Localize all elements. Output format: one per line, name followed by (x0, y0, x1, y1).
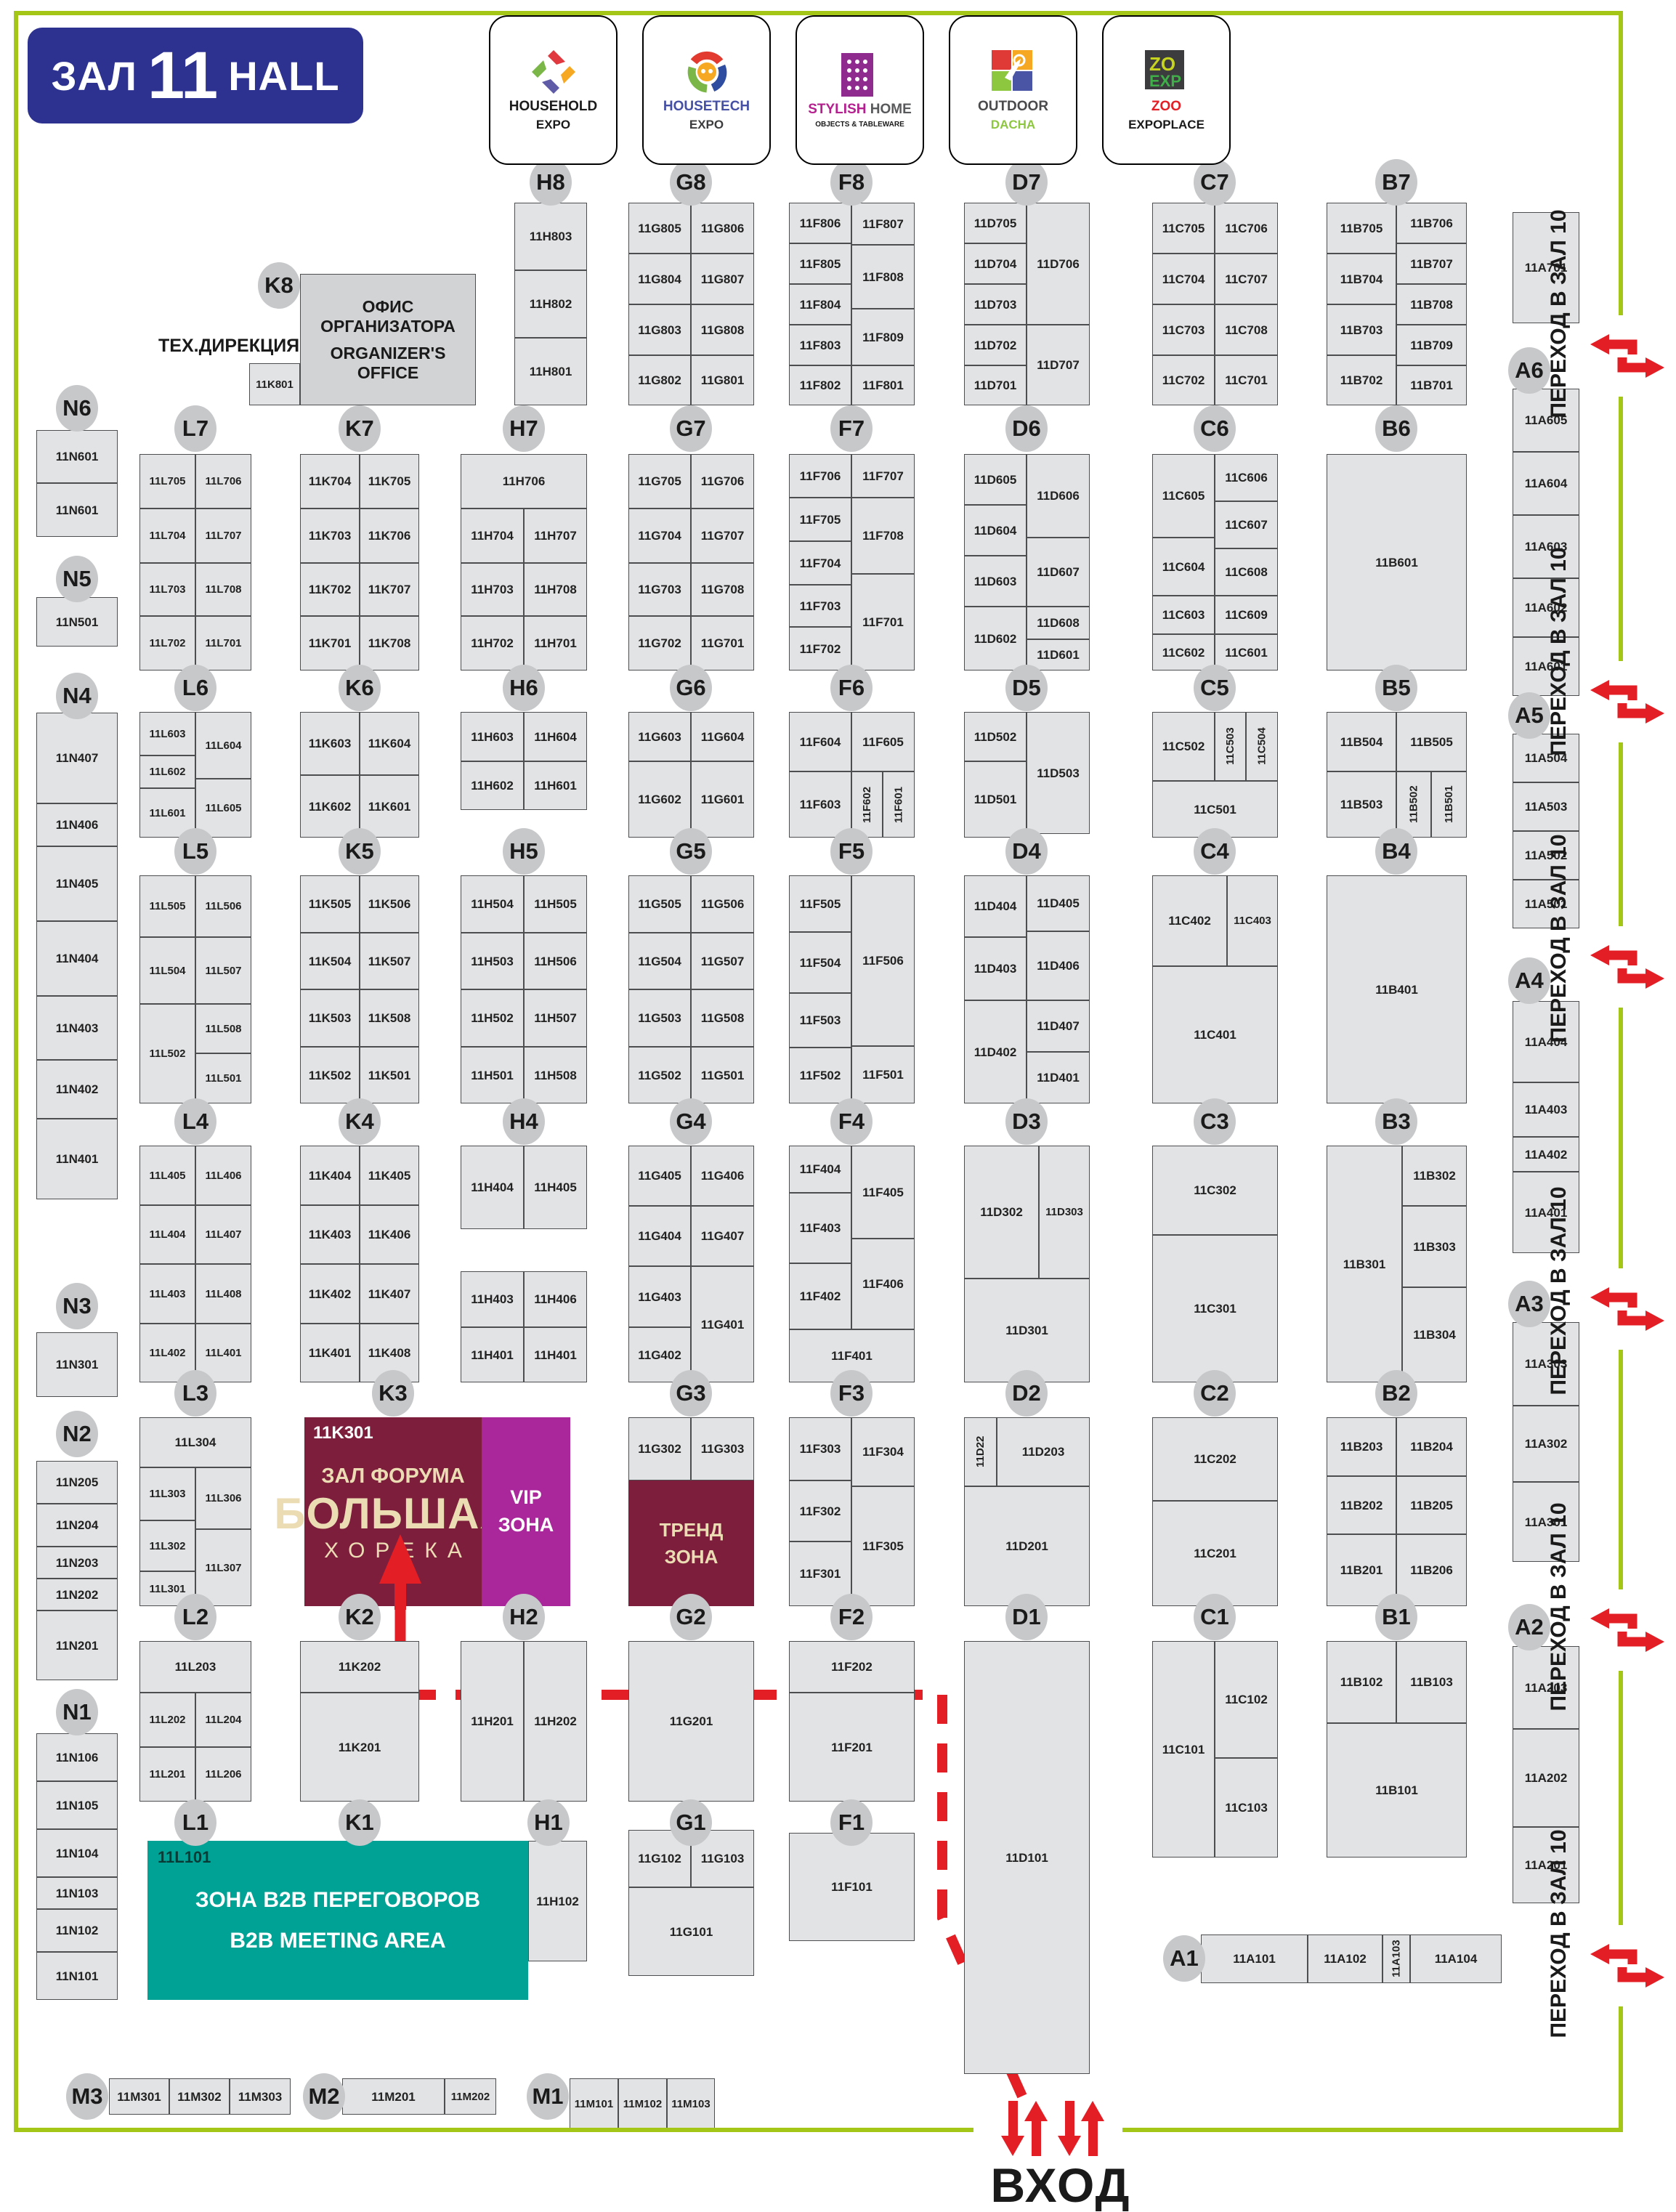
booth-11D607[interactable]: 11D607 (1027, 538, 1090, 607)
booth-11G201[interactable]: 11G201 (628, 1641, 754, 1802)
booth-11L304[interactable]: 11L304 (139, 1417, 251, 1467)
booth-11D705[interactable]: 11D705 (964, 203, 1027, 243)
booth-11D405[interactable]: 11D405 (1027, 875, 1090, 931)
logo-stylish[interactable]: STYLISH HOMEOBJECTS & TABLEWARE (796, 15, 924, 165)
booth-11G504[interactable]: 11G504 (628, 933, 691, 989)
booth-11N101[interactable]: 11N101 (36, 1952, 118, 2000)
booth-11G501[interactable]: 11G501 (691, 1047, 754, 1103)
booth-11D605[interactable]: 11D605 (964, 454, 1027, 505)
booth-11N202[interactable]: 11N202 (36, 1579, 118, 1611)
booth-11H405[interactable]: 11H405 (524, 1146, 587, 1229)
booth-11F708[interactable]: 11F708 (851, 498, 915, 574)
booth-11H508[interactable]: 11H508 (524, 1047, 587, 1103)
booth-11H507[interactable]: 11H507 (524, 989, 587, 1047)
booth-11N401[interactable]: 11N401 (36, 1119, 118, 1199)
booth-11F707[interactable]: 11F707 (851, 454, 915, 498)
booth-11C608[interactable]: 11C608 (1215, 548, 1278, 596)
booth-11F801[interactable]: 11F801 (851, 365, 915, 405)
booth-11L705[interactable]: 11L705 (139, 454, 195, 509)
booth-11L408[interactable]: 11L408 (195, 1264, 251, 1324)
booth-11G806[interactable]: 11G806 (691, 203, 754, 254)
booth-11F605[interactable]: 11F605 (851, 712, 915, 771)
booth-11N201[interactable]: 11N201 (36, 1611, 118, 1680)
booth-11L407[interactable]: 11L407 (195, 1205, 251, 1264)
booth-11D601[interactable]: 11D601 (1027, 639, 1090, 671)
booth-11N405[interactable]: 11N405 (36, 846, 118, 921)
booth-11D604[interactable]: 11D604 (964, 505, 1027, 556)
logo-outdoor[interactable]: OUTDOORDACHA (949, 15, 1077, 165)
booth-11B302[interactable]: 11B302 (1402, 1146, 1467, 1206)
booth-11B202[interactable]: 11B202 (1327, 1476, 1396, 1534)
booth-11L706[interactable]: 11L706 (195, 454, 251, 509)
booth-11A503[interactable]: 11A503 (1513, 782, 1579, 831)
booth-11F201[interactable]: 11F201 (789, 1693, 915, 1802)
booth-11L303[interactable]: 11L303 (139, 1467, 195, 1520)
booth-11H604[interactable]: 11H604 (524, 712, 587, 761)
booth-11G302[interactable]: 11G302 (628, 1417, 691, 1480)
booth-11G507[interactable]: 11G507 (691, 933, 754, 989)
booth-11F806[interactable]: 11F806 (789, 203, 851, 243)
organizer-office[interactable]: ОФИС ОРГАНИЗАТОРА ORGANIZER'S OFFICE (300, 274, 476, 405)
booth-11B708[interactable]: 11B708 (1396, 284, 1467, 325)
booth-11G502[interactable]: 11G502 (628, 1047, 691, 1103)
booth-11C504[interactable]: 11C504 (1246, 712, 1278, 781)
booth-11L306[interactable]: 11L306 (195, 1467, 251, 1529)
booth-11D403[interactable]: 11D403 (964, 937, 1027, 1000)
booth-11H401[interactable]: 11H401 (524, 1327, 587, 1382)
booth-11B703[interactable]: 11B703 (1327, 304, 1396, 355)
booth-11F705[interactable]: 11F705 (789, 498, 851, 541)
booth-11F701[interactable]: 11F701 (851, 574, 915, 671)
booth-11K603[interactable]: 11K603 (300, 712, 360, 775)
booth-11H701[interactable]: 11H701 (524, 616, 587, 671)
booth-11F501[interactable]: 11F501 (851, 1046, 915, 1103)
booth-11M201[interactable]: 11M201 (342, 2078, 445, 2115)
booth-11G601[interactable]: 11G601 (691, 761, 754, 838)
booth-11D203[interactable]: 11D203 (997, 1417, 1090, 1486)
booth-11B201[interactable]: 11B201 (1327, 1534, 1396, 1606)
booth-11H406[interactable]: 11H406 (524, 1271, 587, 1327)
booth-11H703[interactable]: 11H703 (461, 563, 524, 616)
booth-11C601[interactable]: 11C601 (1215, 634, 1278, 671)
booth-11G101[interactable]: 11G101 (628, 1887, 754, 1976)
booth-11N104[interactable]: 11N104 (36, 1829, 118, 1877)
booth-11K506[interactable]: 11K506 (360, 875, 419, 933)
booth-11G805[interactable]: 11G805 (628, 203, 691, 254)
booth-11D404[interactable]: 11D404 (964, 875, 1027, 937)
booth-11L708[interactable]: 11L708 (195, 563, 251, 616)
booth-11K702[interactable]: 11K702 (300, 563, 360, 616)
booth-11A604[interactable]: 11A604 (1513, 452, 1579, 515)
booth-11C605[interactable]: 11C605 (1152, 454, 1215, 538)
booth-11F404[interactable]: 11F404 (789, 1146, 851, 1193)
booth-11F303[interactable]: 11F303 (789, 1417, 851, 1480)
zone-vip[interactable]: VIP ЗОНА (482, 1417, 570, 1606)
booth-11C702[interactable]: 11C702 (1152, 355, 1215, 405)
booth-11L502[interactable]: 11L502 (139, 1004, 195, 1103)
logo-zoo[interactable]: ZO EXPZOOEXPOPLACE (1102, 15, 1231, 165)
booth-11K405[interactable]: 11K405 (360, 1146, 419, 1205)
booth-11B204[interactable]: 11B204 (1396, 1417, 1467, 1476)
booth-11N402[interactable]: 11N402 (36, 1060, 118, 1119)
booth-11K801[interactable]: 11K801 (249, 363, 300, 405)
booth-11H603[interactable]: 11H603 (461, 712, 524, 761)
booth-11L702[interactable]: 11L702 (139, 616, 195, 671)
booth-11A101[interactable]: 11A101 (1201, 1935, 1308, 1983)
booth-11L202[interactable]: 11L202 (139, 1693, 195, 1747)
booth-11C302[interactable]: 11C302 (1152, 1146, 1278, 1235)
booth-11K504[interactable]: 11K504 (300, 933, 360, 989)
booth-11F402[interactable]: 11F402 (789, 1263, 851, 1329)
booth-11N501[interactable]: 11N501 (36, 597, 118, 647)
booth-11G603[interactable]: 11G603 (628, 712, 691, 761)
booth-11G807[interactable]: 11G807 (691, 254, 754, 304)
booth-11B101[interactable]: 11B101 (1327, 1723, 1467, 1857)
booth-11C603[interactable]: 11C603 (1152, 596, 1215, 634)
booth-11B502[interactable]: 11B502 (1396, 771, 1431, 838)
booth-11G505[interactable]: 11G505 (628, 875, 691, 933)
booth-11F406[interactable]: 11F406 (851, 1239, 915, 1329)
booth-11C403[interactable]: 11C403 (1227, 875, 1278, 966)
booth-11B702[interactable]: 11B702 (1327, 355, 1396, 405)
booth-11C402[interactable]: 11C402 (1152, 875, 1227, 966)
booth-11H401[interactable]: 11H401 (461, 1327, 524, 1382)
booth-11H506[interactable]: 11H506 (524, 933, 587, 989)
booth-11K403[interactable]: 11K403 (300, 1205, 360, 1264)
booth-11A103[interactable]: 11A103 (1383, 1935, 1410, 1983)
booth-11B301[interactable]: 11B301 (1327, 1146, 1402, 1382)
booth-11L206[interactable]: 11L206 (195, 1747, 251, 1802)
booth-11B503[interactable]: 11B503 (1327, 771, 1396, 838)
booth-11L501[interactable]: 11L501 (195, 1053, 251, 1103)
booth-11A202[interactable]: 11A202 (1513, 1729, 1579, 1827)
booth-11F604[interactable]: 11F604 (789, 712, 851, 771)
booth-11G801[interactable]: 11G801 (691, 355, 754, 405)
booth-11D101[interactable]: 11D101 (964, 1641, 1090, 2074)
booth-11L603[interactable]: 11L603 (139, 712, 195, 755)
booth-11B203[interactable]: 11B203 (1327, 1417, 1396, 1476)
booth-11C604[interactable]: 11C604 (1152, 538, 1215, 596)
booth-11K508[interactable]: 11K508 (360, 989, 419, 1047)
booth-11K505[interactable]: 11K505 (300, 875, 360, 933)
booth-11C706[interactable]: 11C706 (1215, 203, 1278, 254)
booth-11B706[interactable]: 11B706 (1396, 203, 1467, 243)
booth-11F304[interactable]: 11F304 (851, 1417, 915, 1486)
booth-11B705[interactable]: 11B705 (1327, 203, 1396, 254)
booth-11G503[interactable]: 11G503 (628, 989, 691, 1047)
booth-11K704[interactable]: 11K704 (300, 454, 360, 509)
booth-11K601[interactable]: 11K601 (360, 775, 419, 838)
booth-11D602[interactable]: 11D602 (964, 607, 1027, 671)
booth-11C607[interactable]: 11C607 (1215, 501, 1278, 548)
booth-11G303[interactable]: 11G303 (691, 1417, 754, 1480)
booth-11C202[interactable]: 11C202 (1152, 1417, 1278, 1501)
booth-11G708[interactable]: 11G708 (691, 563, 754, 616)
booth-11F602[interactable]: 11F602 (851, 771, 883, 838)
booth-11H601[interactable]: 11H601 (524, 761, 587, 810)
booth-11B205[interactable]: 11B205 (1396, 1476, 1467, 1534)
booth-11F603[interactable]: 11F603 (789, 771, 851, 838)
booth-11H706[interactable]: 11H706 (461, 454, 587, 509)
booth-11D608[interactable]: 11D608 (1027, 607, 1090, 639)
booth-11D706[interactable]: 11D706 (1027, 203, 1090, 325)
booth-11L505[interactable]: 11L505 (139, 875, 195, 937)
booth-11D603[interactable]: 11D603 (964, 556, 1027, 607)
booth-11H505[interactable]: 11H505 (524, 875, 587, 933)
booth-11L406[interactable]: 11L406 (195, 1146, 251, 1205)
booth-11N407[interactable]: 11N407 (36, 713, 118, 803)
booth-11A402[interactable]: 11A402 (1513, 1137, 1579, 1172)
booth-11K407[interactable]: 11K407 (360, 1264, 419, 1324)
booth-11C708[interactable]: 11C708 (1215, 304, 1278, 355)
booth-11C502[interactable]: 11C502 (1152, 712, 1215, 781)
booth-11L707[interactable]: 11L707 (195, 509, 251, 563)
booth-11H503[interactable]: 11H503 (461, 933, 524, 989)
booth-11C301[interactable]: 11C301 (1152, 1235, 1278, 1382)
booth-11K404[interactable]: 11K404 (300, 1146, 360, 1205)
booth-11G506[interactable]: 11G506 (691, 875, 754, 933)
booth-11L605[interactable]: 11L605 (195, 779, 251, 838)
booth-11N205[interactable]: 11N205 (36, 1461, 118, 1504)
booth-11F805[interactable]: 11F805 (789, 243, 851, 284)
booth-11F403[interactable]: 11F403 (789, 1193, 851, 1263)
booth-11D302[interactable]: 11D302 (964, 1146, 1039, 1279)
booth-11N406[interactable]: 11N406 (36, 803, 118, 846)
booth-11B303[interactable]: 11B303 (1402, 1206, 1467, 1287)
booth-11K507[interactable]: 11K507 (360, 933, 419, 989)
booth-11A302[interactable]: 11A302 (1513, 1406, 1579, 1482)
booth-11B704[interactable]: 11B704 (1327, 254, 1396, 304)
booth-11N301[interactable]: 11N301 (36, 1332, 118, 1397)
booth-11N403[interactable]: 11N403 (36, 996, 118, 1060)
booth-11M202[interactable]: 11M202 (445, 2078, 496, 2115)
zone-trend[interactable]: ТРЕНД ЗОНА (628, 1480, 754, 1606)
booth-11G404[interactable]: 11G404 (628, 1206, 691, 1266)
booth-11F305[interactable]: 11F305 (851, 1486, 915, 1606)
booth-11H404[interactable]: 11H404 (461, 1146, 524, 1229)
booth-11K401[interactable]: 11K401 (300, 1324, 360, 1382)
booth-11H403[interactable]: 11H403 (461, 1271, 524, 1327)
booth-11C703[interactable]: 11C703 (1152, 304, 1215, 355)
booth-11C704[interactable]: 11C704 (1152, 254, 1215, 304)
booth-11F405[interactable]: 11F405 (851, 1146, 915, 1239)
booth-11H102[interactable]: 11H102 (528, 1841, 587, 1961)
booth-11M103[interactable]: 11M103 (667, 2078, 715, 2130)
booth-11F502[interactable]: 11F502 (789, 1048, 851, 1103)
booth-11F302[interactable]: 11F302 (789, 1480, 851, 1541)
booth-11L507[interactable]: 11L507 (195, 937, 251, 1004)
booth-11C102[interactable]: 11C102 (1215, 1641, 1278, 1758)
booth-11D606[interactable]: 11D606 (1027, 454, 1090, 538)
booth-11G707[interactable]: 11G707 (691, 509, 754, 563)
booth-11F506[interactable]: 11F506 (851, 875, 915, 1046)
booth-11F808[interactable]: 11F808 (851, 245, 915, 309)
booth-11G405[interactable]: 11G405 (628, 1146, 691, 1206)
booth-11A403[interactable]: 11A403 (1513, 1082, 1579, 1137)
booth-11B505[interactable]: 11B505 (1396, 712, 1467, 771)
booth-11B501[interactable]: 11B501 (1431, 771, 1467, 838)
booth-11C707[interactable]: 11C707 (1215, 254, 1278, 304)
booth-11D703[interactable]: 11D703 (964, 284, 1027, 325)
booth-11L604[interactable]: 11L604 (195, 712, 251, 779)
booth-11L307[interactable]: 11L307 (195, 1529, 251, 1606)
booth-11N204[interactable]: 11N204 (36, 1504, 118, 1547)
booth-11G602[interactable]: 11G602 (628, 761, 691, 838)
booth-11H708[interactable]: 11H708 (524, 563, 587, 616)
booth-11F809[interactable]: 11F809 (851, 309, 915, 365)
booth-11C606[interactable]: 11C606 (1215, 454, 1278, 501)
booth-11B707[interactable]: 11B707 (1396, 243, 1467, 284)
booth-11G804[interactable]: 11G804 (628, 254, 691, 304)
booth-11B304[interactable]: 11B304 (1402, 1287, 1467, 1382)
booth-11K501[interactable]: 11K501 (360, 1047, 419, 1103)
booth-11H602[interactable]: 11H602 (461, 761, 524, 810)
booth-11D704[interactable]: 11D704 (964, 243, 1027, 284)
booth-11N601[interactable]: 11N601 (36, 430, 118, 483)
zone-b2b-meeting[interactable]: 11L101 ЗОНА B2B ПЕРЕГОВОРОВ B2B MEETING … (147, 1841, 528, 2000)
booth-11M302[interactable]: 11M302 (169, 2078, 230, 2115)
booth-11N601[interactable]: 11N601 (36, 483, 118, 537)
booth-11B206[interactable]: 11B206 (1396, 1534, 1467, 1606)
booth-11C103[interactable]: 11C103 (1215, 1758, 1278, 1857)
booth-11C609[interactable]: 11C609 (1215, 596, 1278, 634)
booth-11F601[interactable]: 11F601 (883, 771, 915, 838)
booth-11B103[interactable]: 11B103 (1396, 1641, 1467, 1723)
booth-11B102[interactable]: 11B102 (1327, 1641, 1396, 1723)
booth-11L201[interactable]: 11L201 (139, 1747, 195, 1802)
booth-11F503[interactable]: 11F503 (789, 993, 851, 1048)
booth-11C201[interactable]: 11C201 (1152, 1501, 1278, 1606)
booth-11F807[interactable]: 11F807 (851, 203, 915, 245)
booth-11B601[interactable]: 11B601 (1327, 454, 1467, 671)
booth-11F706[interactable]: 11F706 (789, 454, 851, 498)
booth-11H803[interactable]: 11H803 (514, 203, 587, 270)
booth-11G802[interactable]: 11G802 (628, 355, 691, 405)
booth-11F504[interactable]: 11F504 (789, 932, 851, 993)
booth-11D407[interactable]: 11D407 (1027, 1000, 1090, 1052)
booth-11D707[interactable]: 11D707 (1027, 325, 1090, 405)
booth-11K202[interactable]: 11K202 (300, 1641, 419, 1693)
booth-11N103[interactable]: 11N103 (36, 1877, 118, 1909)
booth-11F101[interactable]: 11F101 (789, 1833, 915, 1941)
booth-11H201[interactable]: 11H201 (461, 1641, 524, 1802)
booth-11K701[interactable]: 11K701 (300, 616, 360, 671)
booth-11G406[interactable]: 11G406 (691, 1146, 754, 1206)
booth-11F804[interactable]: 11F804 (789, 284, 851, 325)
booth-11C701[interactable]: 11C701 (1215, 355, 1278, 405)
booth-11D402[interactable]: 11D402 (964, 1000, 1027, 1103)
booth-11G706[interactable]: 11G706 (691, 454, 754, 509)
booth-11G701[interactable]: 11G701 (691, 616, 754, 671)
booth-11L602[interactable]: 11L602 (139, 755, 195, 788)
booth-11G703[interactable]: 11G703 (628, 563, 691, 616)
booth-11N105[interactable]: 11N105 (36, 1781, 118, 1829)
booth-11F704[interactable]: 11F704 (789, 541, 851, 585)
booth-11K406[interactable]: 11K406 (360, 1205, 419, 1264)
booth-11G803[interactable]: 11G803 (628, 304, 691, 355)
booth-11N203[interactable]: 11N203 (36, 1547, 118, 1579)
booth-11B709[interactable]: 11B709 (1396, 325, 1467, 365)
booth-11D503[interactable]: 11D503 (1027, 712, 1090, 834)
booth-11K602[interactable]: 11K602 (300, 775, 360, 838)
booth-11K706[interactable]: 11K706 (360, 509, 419, 563)
booth-11D22[interactable]: 11D22 (964, 1417, 997, 1486)
booth-11F202[interactable]: 11F202 (789, 1641, 915, 1693)
booth-11C705[interactable]: 11C705 (1152, 203, 1215, 254)
booth-11M301[interactable]: 11M301 (109, 2078, 169, 2115)
booth-11L302[interactable]: 11L302 (139, 1520, 195, 1571)
zone-horeca-forum[interactable]: 11K301 ЗАЛ ФОРУМА БОЛЬШАЯ ХОРЕКА (304, 1417, 482, 1606)
booth-11L405[interactable]: 11L405 (139, 1146, 195, 1205)
logo-household[interactable]: HOUSEHOLDEXPO (489, 15, 618, 165)
booth-11K503[interactable]: 11K503 (300, 989, 360, 1047)
booth-11N106[interactable]: 11N106 (36, 1733, 118, 1781)
booth-11M101[interactable]: 11M101 (570, 2078, 618, 2130)
booth-11K402[interactable]: 11K402 (300, 1264, 360, 1324)
booth-11D401[interactable]: 11D401 (1027, 1052, 1090, 1103)
booth-11H702[interactable]: 11H702 (461, 616, 524, 671)
booth-11C602[interactable]: 11C602 (1152, 634, 1215, 671)
booth-11G401[interactable]: 11G401 (691, 1266, 754, 1382)
booth-11K708[interactable]: 11K708 (360, 616, 419, 671)
booth-11N404[interactable]: 11N404 (36, 921, 118, 996)
booth-11L506[interactable]: 11L506 (195, 875, 251, 937)
booth-11F802[interactable]: 11F802 (789, 365, 851, 405)
booth-11A102[interactable]: 11A102 (1308, 1935, 1383, 1983)
booth-11K201[interactable]: 11K201 (300, 1693, 419, 1802)
booth-11M102[interactable]: 11M102 (618, 2078, 667, 2130)
booth-11H502[interactable]: 11H502 (461, 989, 524, 1047)
booth-11G604[interactable]: 11G604 (691, 712, 754, 761)
booth-11G403[interactable]: 11G403 (628, 1266, 691, 1327)
booth-11L403[interactable]: 11L403 (139, 1264, 195, 1324)
booth-11D501[interactable]: 11D501 (964, 761, 1027, 838)
booth-11C401[interactable]: 11C401 (1152, 966, 1278, 1103)
booth-11C101[interactable]: 11C101 (1152, 1641, 1215, 1857)
booth-11L703[interactable]: 11L703 (139, 563, 195, 616)
booth-11K604[interactable]: 11K604 (360, 712, 419, 775)
booth-11H501[interactable]: 11H501 (461, 1047, 524, 1103)
booth-11L504[interactable]: 11L504 (139, 937, 195, 1004)
booth-11L203[interactable]: 11L203 (139, 1641, 251, 1693)
booth-11L204[interactable]: 11L204 (195, 1693, 251, 1747)
booth-11D303[interactable]: 11D303 (1039, 1146, 1090, 1279)
booth-11B504[interactable]: 11B504 (1327, 712, 1396, 771)
booth-11F702[interactable]: 11F702 (789, 627, 851, 671)
booth-11L704[interactable]: 11L704 (139, 509, 195, 563)
booth-11B401[interactable]: 11B401 (1327, 875, 1467, 1103)
booth-11K707[interactable]: 11K707 (360, 563, 419, 616)
booth-11H802[interactable]: 11H802 (514, 270, 587, 338)
booth-11D406[interactable]: 11D406 (1027, 931, 1090, 1000)
booth-11F505[interactable]: 11F505 (789, 875, 851, 932)
booth-11L701[interactable]: 11L701 (195, 616, 251, 671)
booth-11H704[interactable]: 11H704 (461, 509, 524, 563)
booth-11G508[interactable]: 11G508 (691, 989, 754, 1047)
booth-11D301[interactable]: 11D301 (964, 1279, 1090, 1382)
booth-11L404[interactable]: 11L404 (139, 1205, 195, 1264)
booth-11M303[interactable]: 11M303 (230, 2078, 291, 2115)
booth-11G808[interactable]: 11G808 (691, 304, 754, 355)
booth-11D701[interactable]: 11D701 (964, 365, 1027, 405)
booth-11G407[interactable]: 11G407 (691, 1206, 754, 1266)
booth-11B701[interactable]: 11B701 (1396, 365, 1467, 405)
booth-11K703[interactable]: 11K703 (300, 509, 360, 563)
booth-11D201[interactable]: 11D201 (964, 1486, 1090, 1606)
booth-11F703[interactable]: 11F703 (789, 585, 851, 627)
booth-11C503[interactable]: 11C503 (1215, 712, 1246, 781)
booth-11H801[interactable]: 11H801 (514, 338, 587, 405)
